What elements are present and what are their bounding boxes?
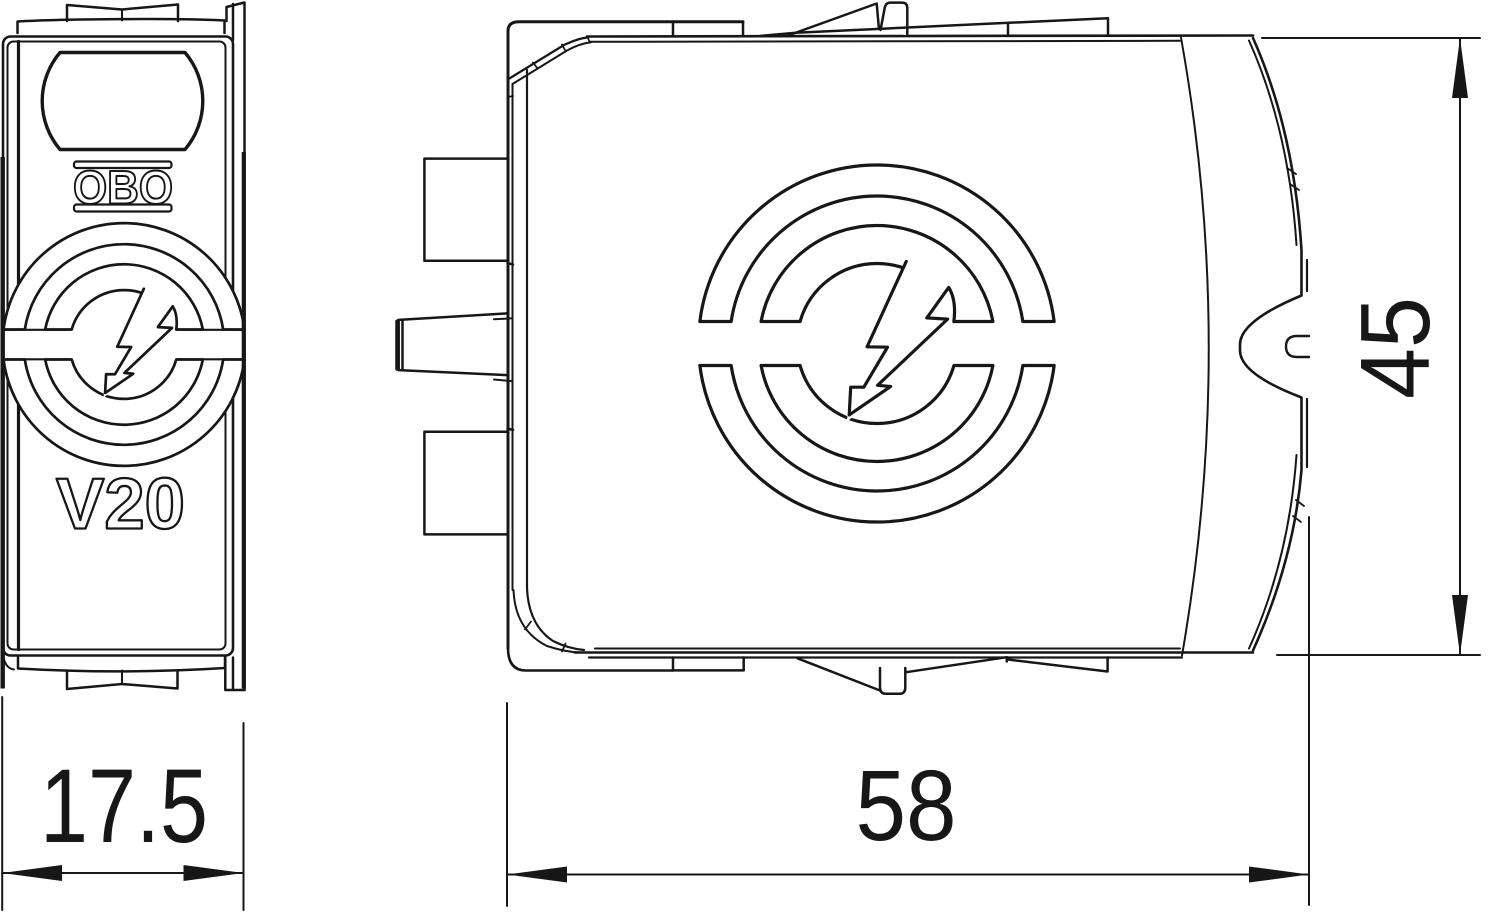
svg-text:58: 58 bbox=[856, 750, 957, 862]
svg-text:V20: V20 bbox=[56, 465, 185, 545]
svg-text:17.5: 17.5 bbox=[40, 748, 208, 865]
svg-text:45: 45 bbox=[1340, 297, 1450, 399]
